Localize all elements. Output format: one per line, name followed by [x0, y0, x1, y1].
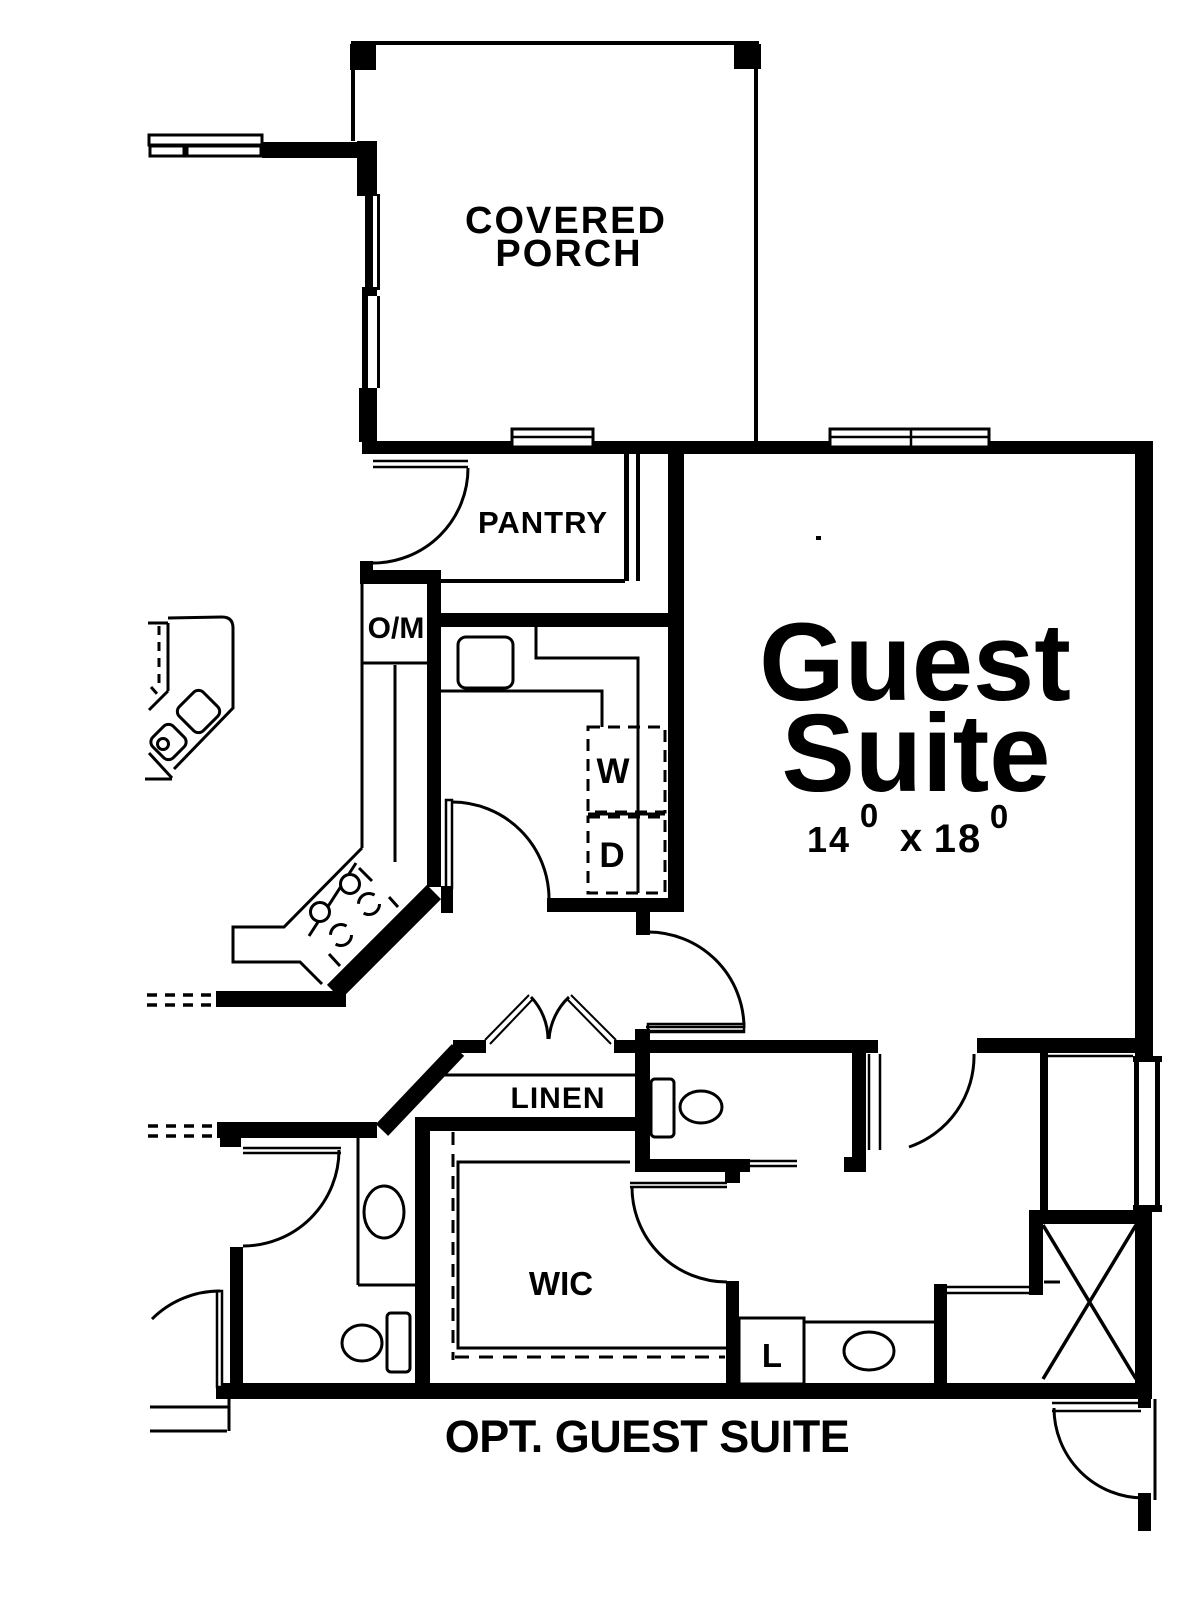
svg-text:PORCH: PORCH [495, 233, 642, 275]
svg-text:0: 0 [860, 797, 878, 834]
svg-text:OPT. GUEST SUITE: OPT. GUEST SUITE [445, 1411, 850, 1462]
svg-text:O/M: O/M [368, 612, 425, 645]
svg-text:0: 0 [990, 798, 1008, 835]
svg-text:14: 14 [807, 819, 851, 860]
svg-text:PANTRY: PANTRY [478, 505, 608, 540]
svg-text:Suite: Suite [782, 692, 1051, 815]
svg-text:18: 18 [934, 817, 983, 861]
svg-text:WIC: WIC [529, 1265, 593, 1302]
svg-text:W: W [596, 752, 629, 791]
svg-text:L: L [762, 1337, 782, 1374]
svg-text:D: D [599, 836, 624, 875]
svg-text:x: x [900, 816, 922, 860]
svg-text:LINEN: LINEN [511, 1082, 606, 1115]
